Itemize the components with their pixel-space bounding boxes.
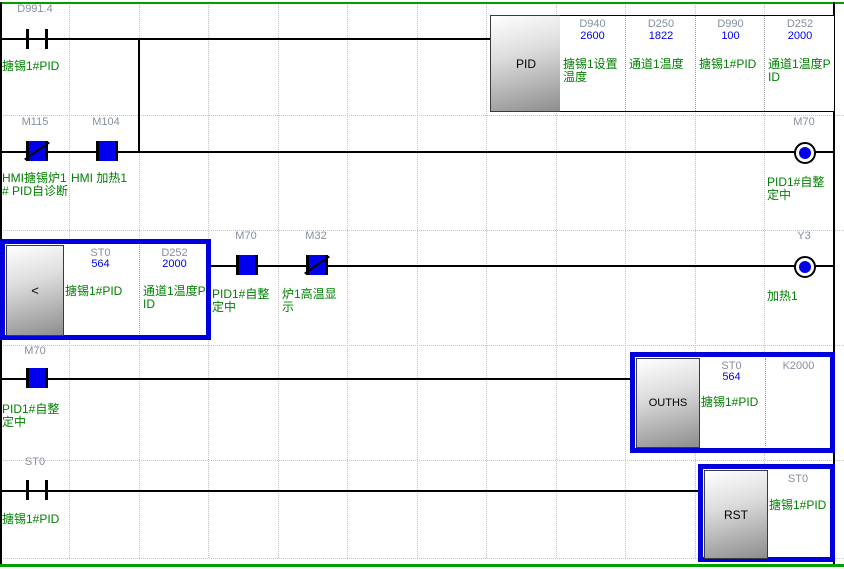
contact-comment: HMI搪锡炉1# PID自诊断 bbox=[2, 172, 69, 198]
contact-device-label: M115 bbox=[2, 116, 68, 128]
grid-line-vertical bbox=[486, 2, 487, 558]
contact-comment: 搪锡1#PID bbox=[2, 60, 68, 73]
contact-comment: 搪锡1#PID bbox=[2, 513, 68, 526]
coil-comment: 加热1 bbox=[767, 290, 833, 303]
operand-device: D990 bbox=[696, 18, 765, 30]
operand-column[interactable]: K2000 bbox=[765, 358, 831, 446]
operand-value: 2600 bbox=[560, 30, 625, 42]
operand-device: ST0 bbox=[766, 473, 830, 485]
operand-value: 2000 bbox=[140, 258, 209, 270]
operand-comment: 搪锡1#PID bbox=[699, 58, 763, 71]
contact-nc-icon[interactable] bbox=[26, 141, 48, 161]
operand-value: 1822 bbox=[626, 30, 696, 42]
contact-comment: PID1#自整定中 bbox=[212, 288, 279, 314]
operand-column[interactable]: D940 2600 搪锡1设置温度 bbox=[560, 16, 625, 111]
operand-comment: 通道1温度PID bbox=[768, 58, 833, 84]
operand-comment: 通道1温度 bbox=[629, 58, 694, 71]
operand-comment: 通道1温度PID bbox=[143, 285, 207, 311]
operand-value: 564 bbox=[698, 371, 765, 383]
contact-no-icon[interactable] bbox=[96, 141, 118, 161]
coil-dot bbox=[799, 261, 811, 273]
operand-column[interactable]: D250 1822 通道1温度 bbox=[625, 16, 696, 111]
contact-no-icon[interactable] bbox=[236, 255, 258, 275]
rung5-wire bbox=[2, 490, 704, 492]
grid-line-horizontal bbox=[0, 345, 844, 346]
operand-value: 100 bbox=[696, 30, 765, 42]
contact-comment: 炉1高温显示 bbox=[282, 288, 348, 314]
grid-line-vertical bbox=[417, 2, 418, 558]
rung2-wire bbox=[2, 151, 833, 153]
contact-comment: HMI 加热1 bbox=[71, 172, 137, 185]
contact-fill bbox=[29, 29, 45, 49]
grid-line-horizontal bbox=[0, 460, 844, 461]
rung3-wire bbox=[208, 265, 833, 267]
operand-device: D250 bbox=[626, 18, 696, 30]
grid-line-horizontal bbox=[0, 230, 844, 231]
operand-device: D252 bbox=[765, 18, 835, 30]
contact-fill bbox=[29, 480, 45, 500]
operand-comment: 搪锡1#PID bbox=[65, 285, 137, 298]
operand-value: 2000 bbox=[765, 30, 835, 42]
pid-instruction-block[interactable]: PID bbox=[490, 15, 562, 112]
coil-device-label: M70 bbox=[771, 116, 837, 128]
operand-column[interactable]: D252 2000 通道1温度PID bbox=[139, 245, 209, 334]
coil-dot bbox=[799, 147, 811, 159]
contact-device-label: ST0 bbox=[2, 456, 68, 468]
contact-bar bbox=[45, 29, 48, 49]
contact-bar bbox=[45, 480, 48, 500]
contact-device-label: D991.4 bbox=[2, 3, 68, 15]
contact-fill bbox=[99, 141, 115, 161]
contact-device-label: M104 bbox=[73, 116, 139, 128]
coil-comment: PID1#自整定中 bbox=[767, 176, 833, 202]
operand-comment: 搪锡1#PID bbox=[701, 396, 763, 409]
contact-fill bbox=[239, 255, 255, 275]
operand-comment: 搪锡1设置温度 bbox=[563, 58, 623, 84]
section-separator-bottom bbox=[0, 564, 844, 567]
operand-column[interactable]: ST0 564 搪锡1#PID bbox=[698, 358, 765, 446]
operand-column[interactable]: D252 2000 通道1温度PID bbox=[764, 16, 835, 111]
ladder-canvas: D991.4 搪锡1#PID PID D940 2600 搪锡1设置温度 D25… bbox=[0, 0, 844, 569]
operand-device: K2000 bbox=[766, 360, 831, 372]
grid-line-vertical bbox=[278, 2, 279, 558]
ouths-instruction-block[interactable]: OUTHS bbox=[636, 358, 700, 448]
ouths-operand-area: ST0 564 搪锡1#PID K2000 bbox=[698, 358, 830, 446]
contact-no-icon[interactable] bbox=[26, 29, 48, 49]
operand-comment: 搪锡1#PID bbox=[769, 499, 828, 512]
contact-bar bbox=[45, 368, 48, 388]
rst-instruction-block[interactable]: RST bbox=[704, 470, 768, 559]
pid-operand-area: D940 2600 搪锡1设置温度 D250 1822 通道1温度 D990 1… bbox=[560, 15, 835, 112]
rung1-branch-wire bbox=[138, 38, 140, 153]
contact-fill bbox=[29, 368, 45, 388]
contact-device-label: M32 bbox=[283, 230, 349, 242]
rung1-wire bbox=[2, 38, 490, 40]
contact-bar bbox=[255, 255, 258, 275]
operand-column[interactable]: ST0 564 搪锡1#PID bbox=[62, 245, 139, 334]
contact-no-icon[interactable] bbox=[26, 368, 48, 388]
contact-no-icon[interactable] bbox=[26, 480, 48, 500]
operand-device: D940 bbox=[560, 18, 625, 30]
rung4-wire bbox=[2, 378, 636, 380]
contact-device-label: M70 bbox=[2, 345, 68, 357]
grid-line-vertical bbox=[347, 2, 348, 558]
contact-nc-icon[interactable] bbox=[306, 255, 328, 275]
compare-operand-area: ST0 564 搪锡1#PID D252 2000 通道1温度PID bbox=[62, 245, 208, 334]
contact-comment: PID1#自整定中 bbox=[2, 403, 69, 429]
coil-device-label: Y3 bbox=[771, 230, 837, 242]
compare-instruction-block[interactable]: < bbox=[6, 245, 64, 336]
coil-icon[interactable] bbox=[794, 256, 816, 278]
section-separator-top bbox=[0, 2, 844, 4]
contact-bar bbox=[115, 141, 118, 161]
contact-device-label: M70 bbox=[213, 230, 279, 242]
operand-value: 564 bbox=[62, 258, 139, 270]
rst-operand-area: ST0 搪锡1#PID bbox=[766, 470, 830, 557]
operand-column[interactable]: D990 100 搪锡1#PID bbox=[695, 16, 765, 111]
operand-column[interactable]: ST0 搪锡1#PID bbox=[766, 470, 830, 557]
coil-icon[interactable] bbox=[794, 142, 816, 164]
